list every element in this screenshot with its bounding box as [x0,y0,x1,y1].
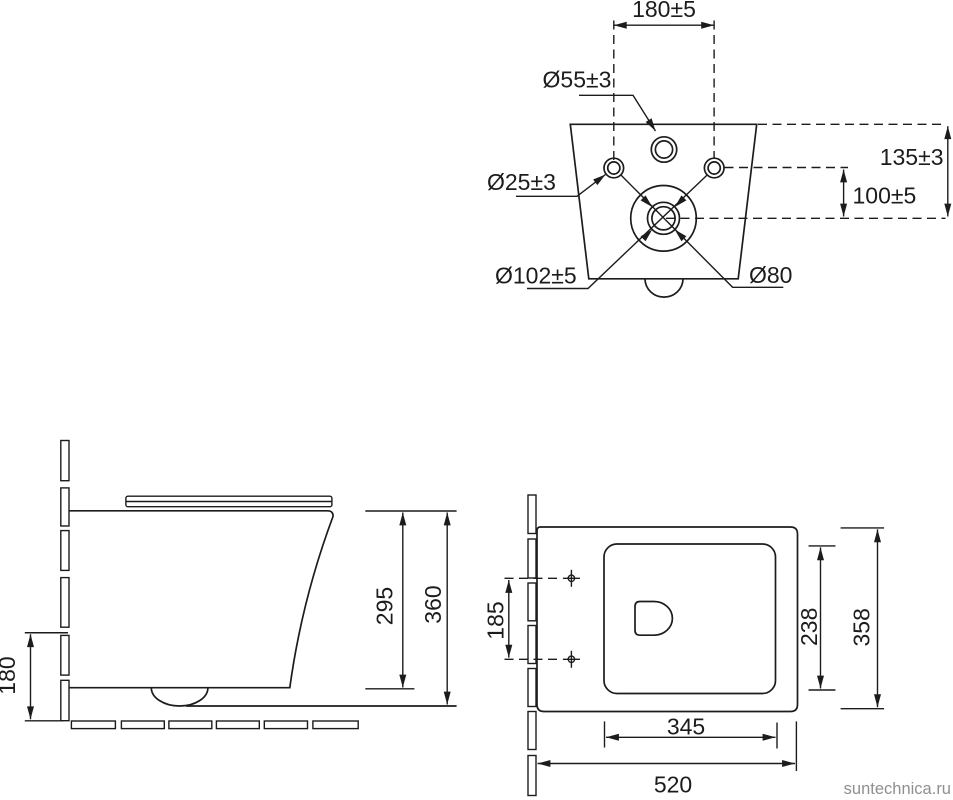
svg-text:180: 180 [0,656,20,694]
svg-text:100±5: 100±5 [853,183,917,209]
svg-text:Ø55±3: Ø55±3 [543,67,612,93]
svg-text:135±3: 135±3 [880,144,944,170]
svg-text:Ø102±5: Ø102±5 [495,263,577,289]
svg-text:180±5: 180±5 [632,0,696,22]
svg-text:Ø80: Ø80 [749,262,792,288]
svg-text:295: 295 [372,587,398,625]
svg-text:358: 358 [848,608,874,646]
svg-text:360: 360 [420,585,446,623]
svg-text:Ø25±3: Ø25±3 [487,169,556,195]
svg-text:suntechnica.ru: suntechnica.ru [844,780,951,798]
svg-text:238: 238 [796,608,822,646]
svg-text:520: 520 [654,772,692,798]
svg-text:345: 345 [667,713,705,739]
svg-text:185: 185 [483,601,509,639]
